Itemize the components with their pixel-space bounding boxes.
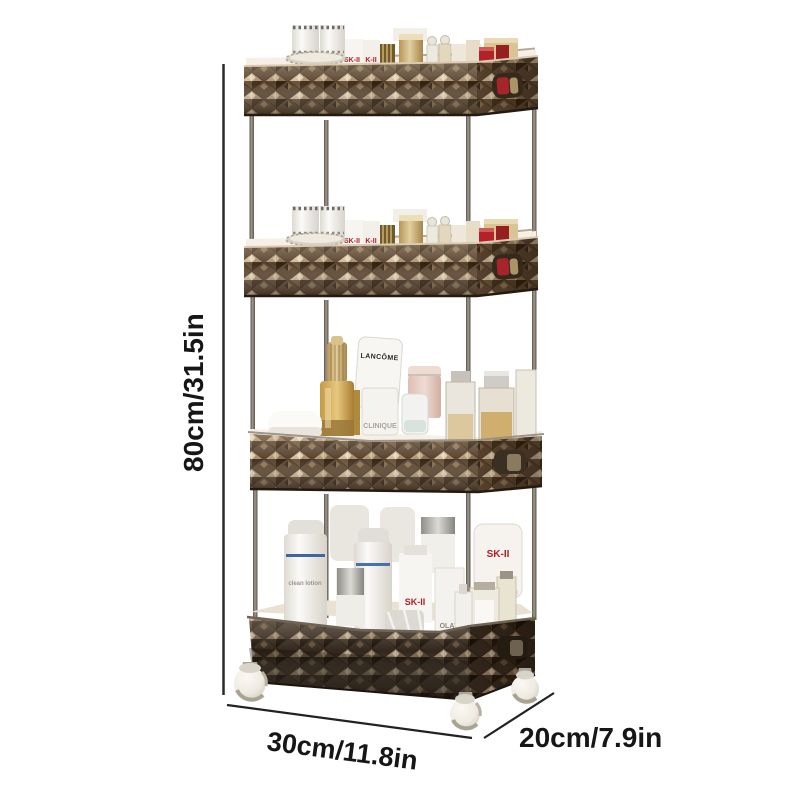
svg-text:SK-II: SK-II	[487, 549, 510, 560]
svg-text:clean lotion: clean lotion	[288, 581, 322, 587]
svg-text:80cm/31.5in: 80cm/31.5in	[178, 313, 209, 472]
svg-text:20cm/7.9in: 20cm/7.9in	[519, 722, 662, 753]
svg-text:CLINIQUE: CLINIQUE	[363, 423, 397, 430]
svg-text:SK-II: SK-II	[405, 597, 426, 607]
